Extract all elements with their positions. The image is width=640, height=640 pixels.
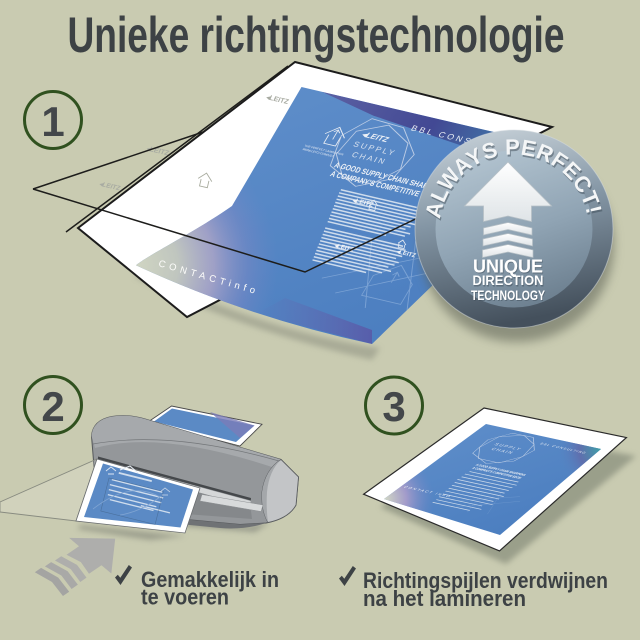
svg-text:1: 1 xyxy=(41,98,64,145)
svg-text:2: 2 xyxy=(41,383,64,430)
svg-text:te voeren: te voeren xyxy=(141,585,229,610)
svg-text:3: 3 xyxy=(382,383,405,430)
svg-text:TECHNOLOGY: TECHNOLOGY xyxy=(471,287,545,303)
svg-text:na het lamineren: na het lamineren xyxy=(363,586,526,611)
svg-text:Unieke richtingstechnologie: Unieke richtingstechnologie xyxy=(68,7,565,63)
svg-text:DIRECTION: DIRECTION xyxy=(473,273,544,288)
